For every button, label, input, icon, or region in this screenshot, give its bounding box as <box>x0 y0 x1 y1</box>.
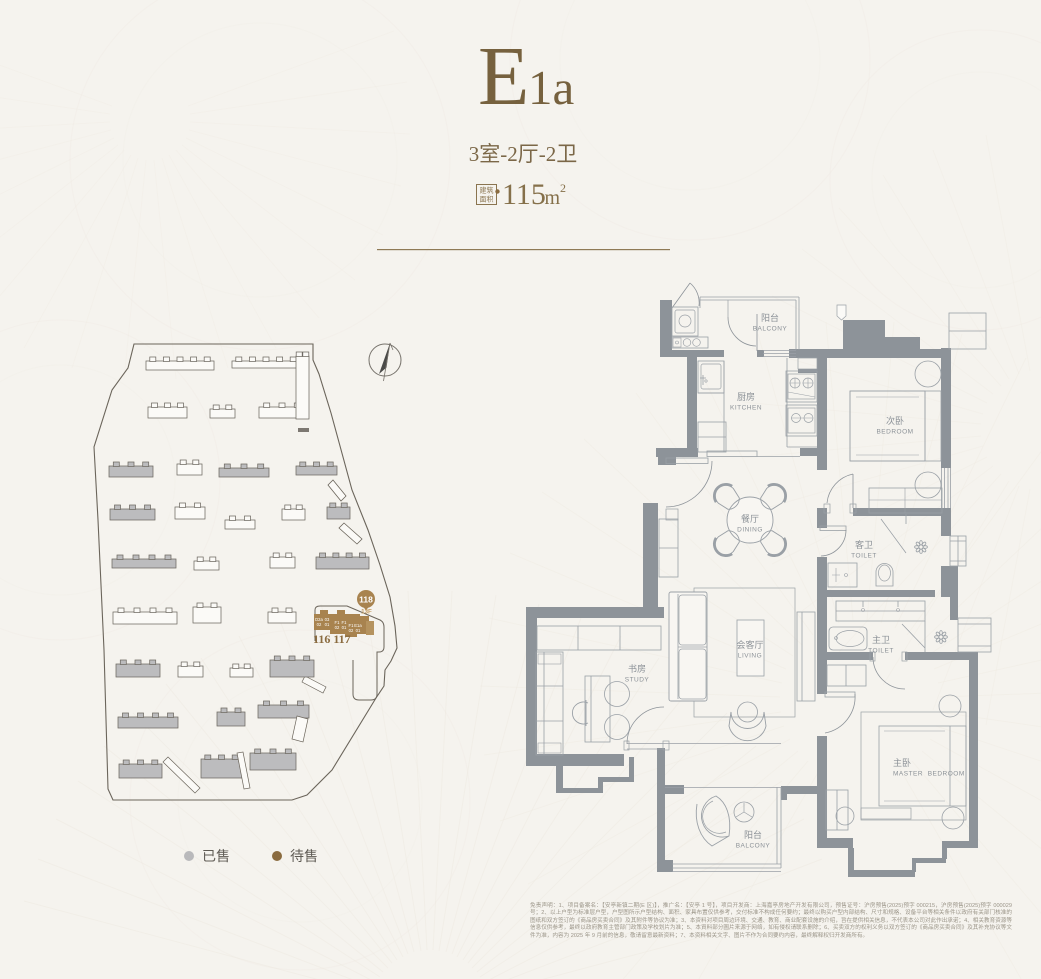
svg-text:主卫: 主卫 <box>872 634 890 645</box>
svg-text:LIVING: LIVING <box>738 653 762 660</box>
svg-text:BALCONY: BALCONY <box>753 326 788 333</box>
svg-text:STUDY: STUDY <box>625 677 650 684</box>
svg-text:TOILET: TOILET <box>851 553 877 560</box>
svg-text:BEDROOM: BEDROOM <box>876 429 913 436</box>
svg-text:厨房: 厨房 <box>737 391 755 402</box>
svg-text:DINING: DINING <box>737 527 763 534</box>
svg-text:客卫: 客卫 <box>855 539 873 550</box>
svg-text:餐厅: 餐厅 <box>741 513 759 524</box>
svg-text:MASTER BEDROOM: MASTER BEDROOM <box>893 771 965 778</box>
svg-text:书房: 书房 <box>628 663 646 674</box>
svg-text:TOILET: TOILET <box>868 648 894 655</box>
svg-text:会客厅: 会客厅 <box>736 639 763 650</box>
svg-text:阳台: 阳台 <box>744 829 762 840</box>
svg-text:主卧: 主卧 <box>893 757 911 768</box>
svg-text:阳台: 阳台 <box>761 312 779 323</box>
svg-text:次卧: 次卧 <box>886 415 904 426</box>
svg-text:BALCONY: BALCONY <box>736 843 771 850</box>
svg-text:KITCHEN: KITCHEN <box>730 405 762 412</box>
